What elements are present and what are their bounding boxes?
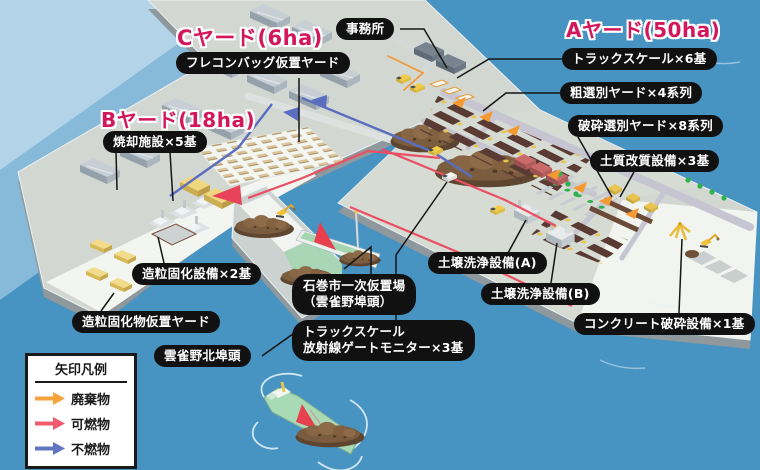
label-rough-sorting-yard: 粗選別ヤード×4系列 — [560, 82, 702, 104]
label-flecon-bag-yard: フレコンバッグ仮置ヤード — [176, 52, 350, 74]
label-line: 石巻市一次仮置場 — [303, 278, 405, 294]
label-ishinomaki-temp-site: 石巻市一次仮置場 （雲雀野埠頭） — [292, 274, 416, 315]
legend-item-waste: 廃棄物 — [35, 389, 127, 408]
label-truck-scale-6: トラックスケール×6基 — [562, 48, 717, 70]
label-soil-improvement: 土質改質設備×3基 — [590, 150, 719, 172]
yard-c-title: Cヤード(6ha) — [177, 22, 323, 52]
label-granulation: 造粒固化設備×2基 — [132, 263, 261, 285]
waste-arrow-icon — [35, 392, 65, 405]
label-hibarino-north-wharf: 雲雀野北埠頭 — [154, 345, 251, 367]
label-truck-scale-gate-monitor: トラックスケール 放射線ゲートモニター×3基 — [292, 320, 475, 361]
arrow-legend: 矢印凡例 廃棄物 可燃物 不燃物 — [25, 353, 137, 469]
label-line: （雲雀野埠頭） — [303, 294, 405, 310]
burnable-arrow-icon — [35, 417, 65, 430]
nonburnable-arrow-icon — [35, 442, 65, 455]
legend-item-label: 不燃物 — [71, 439, 110, 458]
legend-item-label: 可燃物 — [71, 414, 110, 433]
facility-map-illustration: Aヤード(50ha) Bヤード(18ha) Cヤード(6ha) 事務所 フレコン… — [0, 0, 760, 470]
yard-a-title: Aヤード(50ha) — [566, 14, 720, 43]
label-line: 放射線ゲートモニター×3基 — [303, 340, 464, 356]
label-concrete-crushing: コンクリート破砕設備×1基 — [574, 313, 755, 335]
label-crush-sorting-yard: 破砕選別ヤード×8系列 — [568, 115, 723, 137]
label-granulation-yard: 造粒固化物仮置ヤード — [72, 311, 220, 333]
label-incineration: 焼却施設×5基 — [103, 131, 207, 153]
yard-b-title: Bヤード(18ha) — [101, 104, 255, 133]
legend-item-label: 廃棄物 — [71, 389, 110, 408]
label-soil-washing-a: 土壌洗浄設備(A) — [428, 252, 547, 274]
legend-item-burnable: 可燃物 — [35, 414, 127, 433]
label-soil-washing-b: 土壌洗浄設備(B) — [481, 283, 600, 305]
legend-item-nonburnable: 不燃物 — [35, 439, 127, 458]
label-office: 事務所 — [336, 18, 394, 40]
label-line: トラックスケール — [303, 324, 464, 340]
legend-title: 矢印凡例 — [35, 359, 127, 383]
